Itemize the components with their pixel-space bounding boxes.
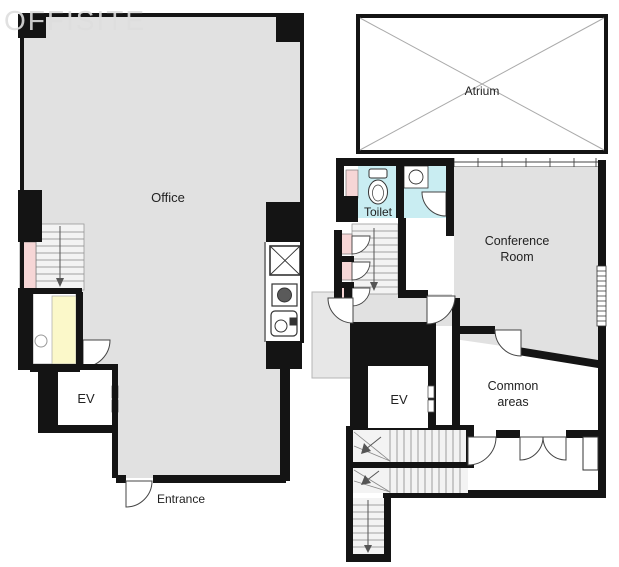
conference-room-label-line2: Room xyxy=(500,250,533,264)
atrium-area: Atrium xyxy=(358,16,606,152)
toilet-bowl-inner xyxy=(373,185,384,201)
stairs-run2 xyxy=(353,468,468,493)
entrance-door-swing-icon xyxy=(126,481,152,507)
common-door-swing-icon xyxy=(495,330,521,356)
floor-2-plan: Atrium Toilet xyxy=(312,16,606,562)
staircase-floor2-lower xyxy=(353,430,468,554)
utility-room xyxy=(33,292,76,364)
elevator-door-icon xyxy=(428,386,434,398)
floor-drain-icon xyxy=(35,335,47,347)
common-areas-label-line2: areas xyxy=(497,395,528,409)
stove-burner-icon xyxy=(278,288,292,302)
elevator-floor1: EV xyxy=(58,368,118,426)
entrance-label: Entrance xyxy=(157,492,205,506)
window-hatch xyxy=(597,266,606,326)
elevator-door-icon xyxy=(428,400,434,412)
conference-room-label-line1: Conference xyxy=(485,234,550,248)
watermark-text: OFFISITE xyxy=(4,5,146,36)
common-areas-label-line1: Common xyxy=(488,379,539,393)
staircase-floor1 xyxy=(36,224,84,290)
elevator-floor2: EV xyxy=(368,366,434,428)
elevator-label: EV xyxy=(390,392,408,407)
railing-ticks xyxy=(430,158,596,167)
floorplan-svg: EV Office Entrance Atrium xyxy=(0,0,619,567)
faucet-icon xyxy=(290,318,296,325)
staircase-floor2-upper xyxy=(352,224,398,294)
floor-1-plan: EV Office Entrance xyxy=(18,13,304,507)
atrium-label: Atrium xyxy=(465,84,500,98)
toilet-label: Toilet xyxy=(364,205,393,219)
stairhall-door-swing-icon xyxy=(468,437,496,465)
toilet-tank-icon xyxy=(369,169,387,178)
floorplan-image: EV Office Entrance Atrium xyxy=(0,0,619,567)
double-door-swing-icon xyxy=(520,437,566,460)
stair-closets xyxy=(338,234,370,306)
office-label: Office xyxy=(151,190,185,205)
elevator-label: EV xyxy=(77,391,95,406)
utility-room-yellow-area xyxy=(52,296,76,364)
round-sink-icon xyxy=(409,170,423,184)
closet-box xyxy=(583,437,598,470)
pink-duct-strip xyxy=(346,170,358,198)
